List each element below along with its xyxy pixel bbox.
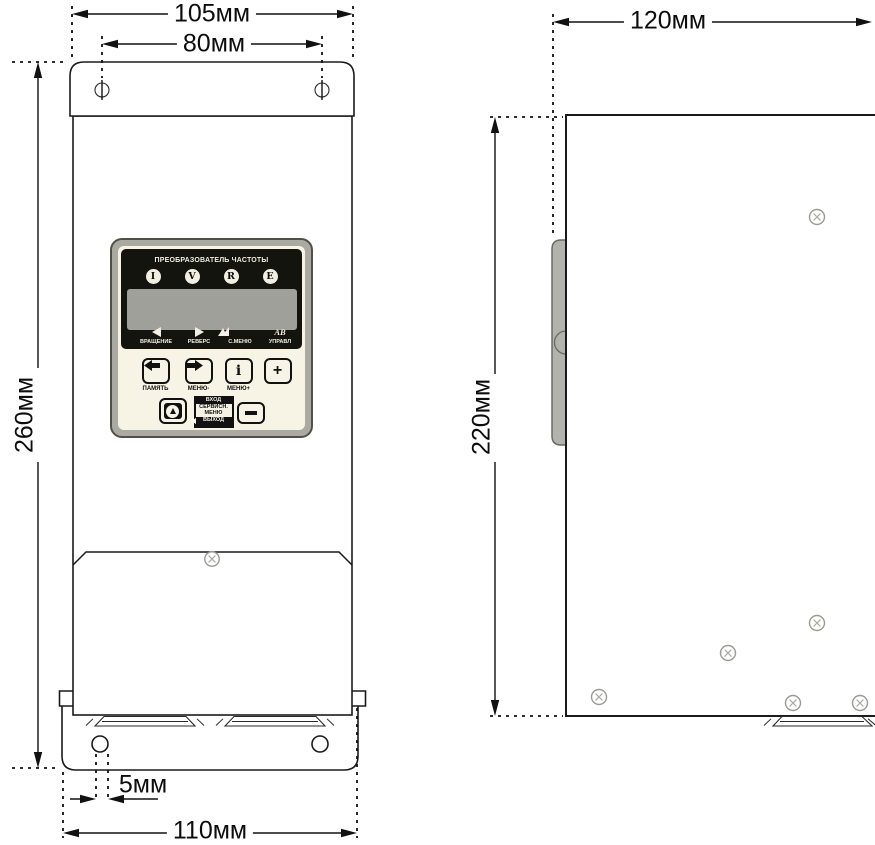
status-control: АВ УПРАВЛ — [257, 327, 303, 345]
status-rotation: ВРАЩЕНИЕ — [133, 327, 179, 345]
reverse-icon — [176, 327, 222, 338]
mode-label-box: ВХОД СЕРВИСН. МЕНЮ ВЫХОД — [194, 396, 234, 428]
technical-drawing-page: 105мм 80мм 260мм 5мм 110мм 120мм 220мм П… — [0, 0, 875, 845]
side-vent — [764, 717, 875, 727]
arrow-left-icon — [144, 360, 160, 371]
menu-minus-button-label: МЕНЮ- — [188, 386, 210, 392]
side-screw-icon — [786, 696, 801, 711]
rotation-icon — [133, 327, 179, 338]
up-triangle-icon — [170, 408, 176, 414]
indicator-row: I V R E — [121, 269, 302, 284]
mode-box-notch — [191, 418, 196, 424]
plus-button: + — [264, 358, 292, 384]
side-screw-icon — [810, 210, 825, 225]
front-cover-screw-icon — [205, 552, 219, 566]
keypad-title: ПРЕОБРАЗОВАТЕЛЬ ЧАСТОТЫ — [121, 249, 302, 264]
enter-button — [159, 398, 187, 424]
lcd-display — [127, 289, 297, 330]
front-vent-right — [216, 717, 334, 727]
dim-overall-height: 260мм — [13, 377, 38, 453]
dim-depth: 120мм — [624, 9, 712, 34]
indicator-i: I — [146, 269, 161, 284]
indicator-v: V — [185, 269, 200, 284]
dim-bottom-width: 110мм — [167, 819, 253, 844]
minus-button — [237, 402, 265, 424]
menu-plus-button: i — [225, 358, 253, 384]
status-reverse: РЕВЕРС — [176, 327, 222, 345]
front-left-tab — [60, 691, 74, 706]
keypad-display-panel: ПРЕОБРАЗОВАТЕЛЬ ЧАСТОТЫ I V R E ВРАЩЕНИЕ… — [121, 249, 302, 349]
info-icon: i — [236, 364, 241, 378]
dim-hole-spacing: 80мм — [177, 32, 251, 57]
front-vent-left — [86, 717, 204, 727]
side-body — [566, 115, 875, 716]
indicator-e: E — [263, 269, 278, 284]
bottom-hole-right — [312, 736, 328, 752]
side-screw-icon — [810, 616, 825, 631]
side-screw-icon — [853, 696, 868, 711]
control-icon: АВ — [257, 327, 303, 338]
dim-overall-width: 105мм — [168, 2, 256, 27]
front-right-tab — [352, 691, 366, 706]
minus-icon — [245, 411, 257, 415]
bottom-hole-left — [92, 736, 108, 752]
keypad-faceplate: ПРЕОБРАЗОВАТЕЛЬ ЧАСТОТЫ I V R E ВРАЩЕНИЕ… — [118, 246, 305, 430]
dim-body-height: 220мм — [470, 379, 495, 455]
side-view — [552, 115, 875, 726]
side-screw-icon — [592, 690, 607, 705]
enter-button-face — [164, 403, 182, 419]
front-top-plate — [70, 62, 354, 116]
indicator-r: R — [224, 269, 239, 284]
plus-icon: + — [273, 363, 282, 379]
dim-hole-offset: 5мм — [113, 773, 173, 798]
memory-button — [142, 358, 170, 384]
memory-button-label: ПАМЯТЬ — [143, 386, 169, 392]
arrow-right-icon — [187, 360, 203, 371]
menu-plus-button-label: МЕНЮ+ — [227, 386, 250, 392]
side-screw-icon — [721, 646, 736, 661]
keypad-bezel: ПРЕОБРАЗОВАТЕЛЬ ЧАСТОТЫ I V R E ВРАЩЕНИЕ… — [110, 238, 313, 438]
menu-minus-button — [185, 358, 213, 384]
